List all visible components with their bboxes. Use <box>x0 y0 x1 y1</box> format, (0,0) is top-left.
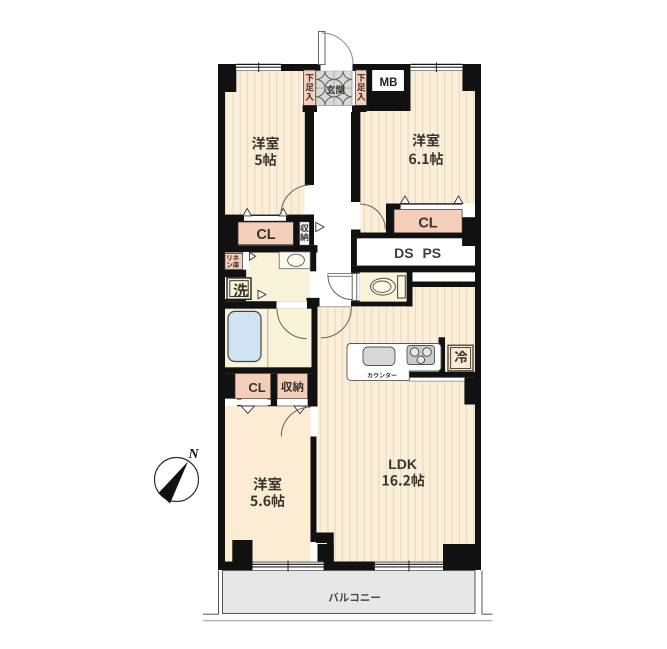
svg-text:N: N <box>187 447 199 462</box>
svg-text:CL: CL <box>256 227 275 243</box>
svg-text:CL: CL <box>418 216 437 232</box>
svg-text:PS: PS <box>422 245 441 261</box>
svg-text:MB: MB <box>380 77 398 89</box>
svg-text:CL: CL <box>248 380 265 395</box>
svg-text:LDK: LDK <box>388 456 417 472</box>
svg-text:DS: DS <box>394 245 413 261</box>
